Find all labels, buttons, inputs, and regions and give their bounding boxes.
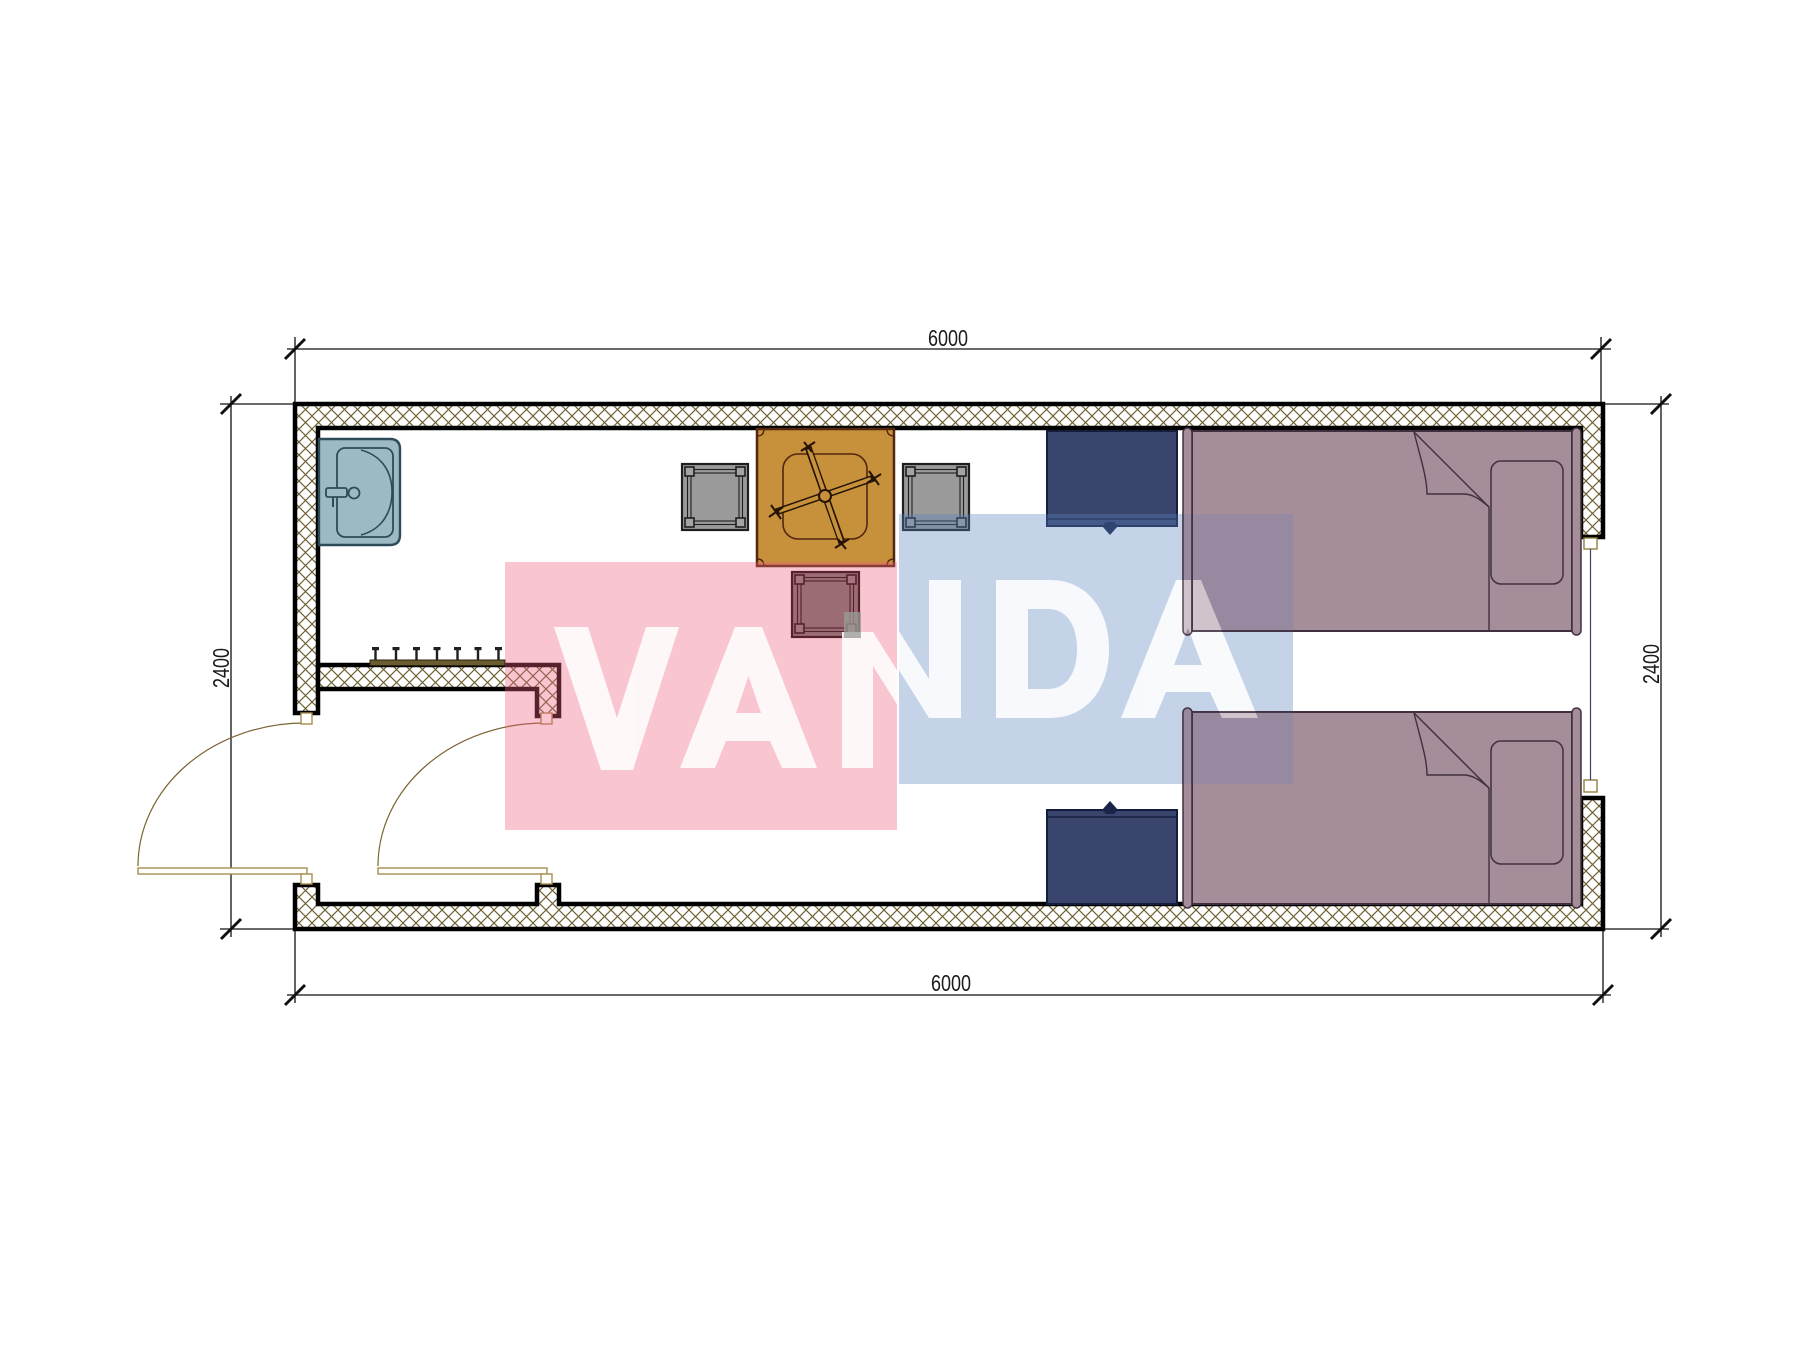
svg-text:2400: 2400	[1638, 644, 1664, 684]
svg-text:6000: 6000	[928, 325, 968, 351]
svg-text:6000: 6000	[931, 970, 971, 996]
svg-text:2400: 2400	[208, 648, 234, 688]
